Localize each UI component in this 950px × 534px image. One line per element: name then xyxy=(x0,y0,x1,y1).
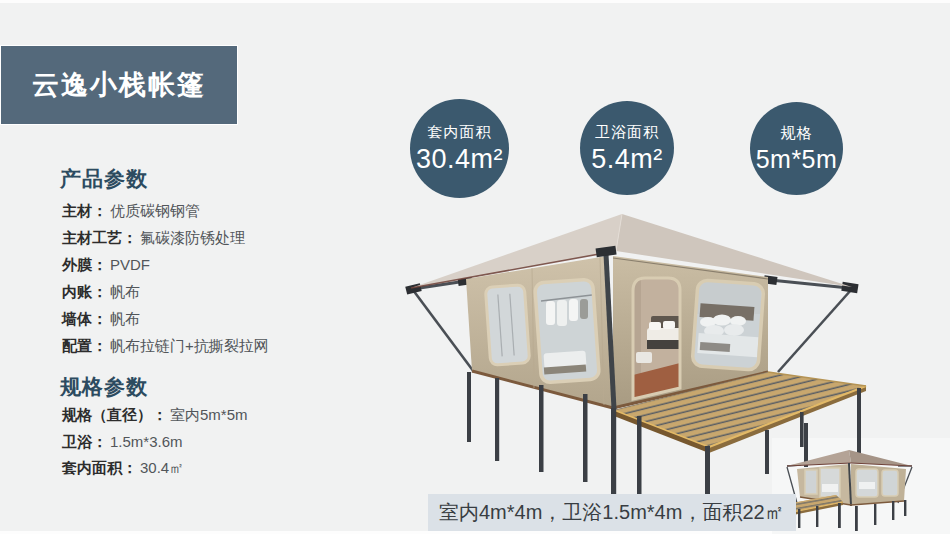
spec-value: 室内5m*5m xyxy=(170,406,248,423)
badge-bath-area: 卫浴面积 5.4m² xyxy=(580,101,674,195)
spec-label: 墙体： xyxy=(62,310,107,327)
spec-row-config: 配置：帆布拉链门+抗撕裂拉网 xyxy=(62,337,269,356)
spec-row-material-process: 主材工艺：氟碳漆防锈处理 xyxy=(62,229,245,248)
spec-row-wall: 墙体：帆布 xyxy=(62,310,140,329)
badge-value: 5.4m² xyxy=(591,145,663,173)
spec-label: 主材： xyxy=(62,202,107,219)
door-opening xyxy=(630,275,685,405)
spec-row-bathroom: 卫浴：1.5m*3.6m xyxy=(62,433,183,452)
spec-value: 30.4㎡ xyxy=(140,459,184,476)
tent-illustration xyxy=(380,196,950,534)
spec-row-outer-membrane: 外膜：PVDF xyxy=(62,256,150,275)
thumb-bed xyxy=(822,484,838,492)
badge-label: 规格 xyxy=(781,124,813,143)
badge-label: 卫浴面积 xyxy=(595,123,659,142)
spec-label: 套内面积： xyxy=(62,459,137,476)
spec-label: 卫浴： xyxy=(62,433,107,450)
badge-label: 套内面积 xyxy=(428,123,492,142)
right-guy-rods xyxy=(770,280,851,372)
spec-label: 配置： xyxy=(62,337,107,354)
spec-value: 帆布拉链门+抗撕裂拉网 xyxy=(110,337,269,354)
thumb-window xyxy=(805,470,817,494)
left-window-large xyxy=(535,279,600,383)
spec-label: 规格（直径）： xyxy=(62,406,167,423)
section-heading-product-params: 产品参数 xyxy=(60,165,148,193)
page-title: 云逸小栈帐篷 xyxy=(0,67,206,103)
thumb-window xyxy=(882,470,898,496)
spec-row-inner-area: 套内面积：30.4㎡ xyxy=(62,459,184,478)
right-window xyxy=(692,280,764,370)
spec-value: 优质碳钢钢管 xyxy=(110,202,200,219)
header-band: 云逸小栈帐篷 xyxy=(0,45,238,125)
spec-label: 内账： xyxy=(62,283,107,300)
thumb-window xyxy=(820,468,840,497)
badge-size: 规格 5m*5m xyxy=(750,102,843,195)
spec-value: 帆布 xyxy=(110,283,140,300)
left-guy-rods xyxy=(413,281,474,372)
spec-value: 帆布 xyxy=(110,310,140,327)
spec-value: PVDF xyxy=(110,256,150,273)
badge-value: 30.4m² xyxy=(416,145,503,173)
spec-value: 氟碳漆防锈处理 xyxy=(140,229,245,246)
spec-row-size: 规格（直径）：室内5m*5m xyxy=(62,406,248,425)
thumb-bed xyxy=(859,482,875,489)
badge-inner-area: 套内面积 30.4m² xyxy=(410,99,509,198)
spec-value: 1.5m*3.6m xyxy=(110,433,183,450)
rod-clamp xyxy=(841,282,858,293)
spec-label: 外膜： xyxy=(62,256,107,273)
badge-value: 5m*5m xyxy=(756,146,838,172)
section-heading-size-params: 规格参数 xyxy=(60,373,148,401)
rod-clamp xyxy=(405,283,421,294)
left-window-small xyxy=(485,285,529,366)
spec-label: 主材工艺： xyxy=(62,229,137,246)
footer-note: 室内4m*4m，卫浴1.5m*4m，面积22㎡ xyxy=(428,494,796,531)
spec-row-material: 主材：优质碳钢钢管 xyxy=(62,202,200,221)
slide: 云逸小栈帐篷 产品参数 主材：优质碳钢钢管 主材工艺：氟碳漆防锈处理 外膜：PV… xyxy=(0,0,950,534)
top-edge-strip xyxy=(0,0,950,3)
spec-row-inner-tent: 内账：帆布 xyxy=(62,283,140,302)
